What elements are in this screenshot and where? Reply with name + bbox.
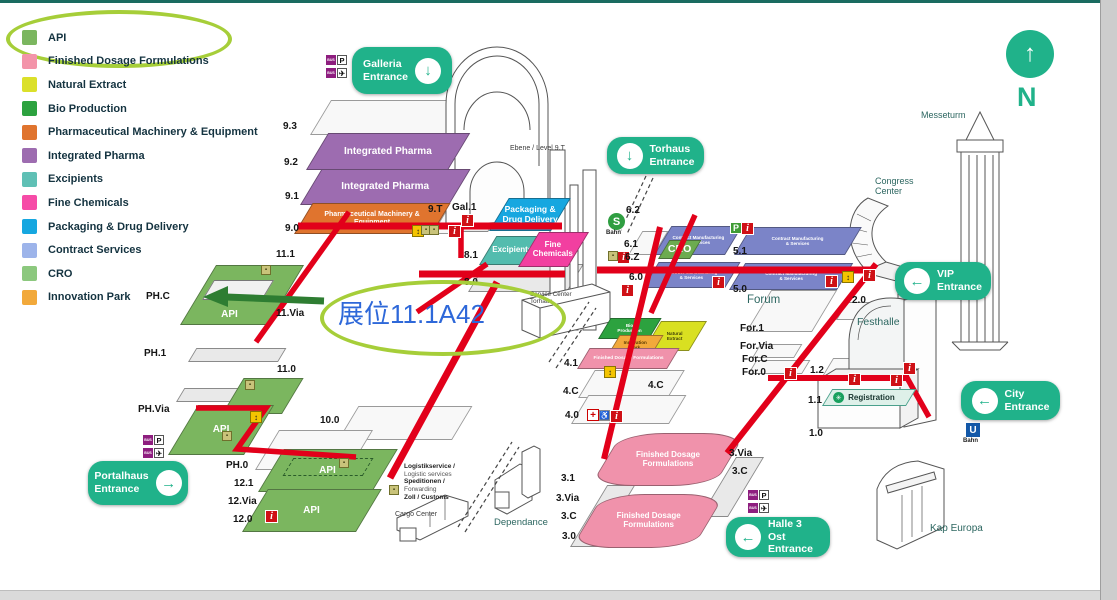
hall-level-label: 1.1	[808, 395, 822, 406]
legend-swatch	[22, 195, 37, 210]
facility-icon: ▪	[245, 380, 255, 390]
registration-label: Registration	[848, 393, 895, 402]
messeturm-building	[952, 112, 1008, 350]
entrance-label: Portalhaus Entrance	[94, 470, 148, 495]
logistics-text-block: Logistikservice /Logistic servicesSpedit…	[404, 463, 455, 501]
hall-slab: Integrated Pharma	[300, 169, 471, 205]
hall-slab: Packaging & Drug Delivery	[489, 198, 571, 231]
bus-airplane-icon: BUS✈	[748, 503, 769, 513]
entrance-galleria-button[interactable]: Galleria Entrance↓	[352, 47, 452, 94]
hall-level-label: 5.0	[733, 284, 747, 295]
bus-icon: BUS	[143, 435, 153, 445]
facility-icon: ▪	[222, 431, 232, 441]
info-icon: i	[621, 284, 634, 297]
hall-level-label: 6.2	[626, 205, 640, 216]
airplane-icon: ✈	[154, 448, 164, 458]
entrance-arrow-icon: ←	[735, 524, 761, 550]
hall-slab-label: Finished Dosage Formulations	[592, 512, 705, 530]
bus-parking-icon: BUSP	[748, 490, 769, 500]
hall-slab: Contract Manufacturing & Services	[643, 262, 741, 288]
info-icon: i	[903, 362, 916, 375]
hall-slab-label: Contract Manufacturing & Services	[747, 236, 849, 246]
bus-parking-icon: BUSP	[326, 55, 347, 65]
legend-item-label: Excipients	[48, 173, 103, 185]
hall-level-label: 9.1	[285, 191, 299, 202]
info-icon: i	[461, 214, 474, 227]
bus-icon: BUS	[748, 503, 758, 513]
place-label: Forum	[747, 294, 780, 307]
legend-item-label: Bio Production	[48, 103, 127, 115]
booth-annotation-label: 展位11.1A42	[338, 294, 485, 331]
legend-item: API	[22, 26, 258, 50]
legend-swatch	[22, 266, 37, 281]
bottom-edge-strip	[0, 590, 1100, 600]
bus-icon: BUS	[326, 55, 336, 65]
info-icon: i	[848, 373, 861, 386]
hall-dashed-area	[283, 458, 374, 476]
hall-level-label: For.C	[742, 354, 768, 365]
info-icon: i	[863, 269, 876, 282]
entrance-city-button[interactable]: ←City Entrance	[961, 381, 1060, 420]
entrance-label: Torhaus Entrance	[650, 143, 695, 168]
exhibition-map: APIFinished Dosage FormulationsNatural E…	[0, 0, 1117, 600]
legend-item-label: API	[48, 32, 66, 44]
info-icon: i	[448, 225, 461, 238]
legend-item-label: Finished Dosage Formulations	[48, 55, 209, 67]
facility-icon: ▪	[608, 251, 618, 261]
hall-level-label: PH.Via	[138, 404, 170, 415]
hall-level-plate	[578, 370, 685, 398]
parking-icon: P	[154, 435, 164, 445]
hall-level-label: For.0	[742, 367, 766, 378]
legend-swatch	[22, 101, 37, 116]
legend-item: Integrated Pharma	[22, 144, 258, 168]
legend-item-label: Fine Chemicals	[48, 197, 129, 209]
legend-item: Excipients	[22, 168, 258, 192]
hall-level-label: Gal.1	[452, 202, 476, 213]
hall-slab-label: Finished Dosage Formulations	[611, 451, 726, 469]
hall-level-label: 12.0	[233, 514, 252, 525]
hall-level-label: 3.C	[732, 466, 748, 477]
hall-level-label: 9.2	[284, 157, 298, 168]
hall-level-plate	[188, 348, 286, 362]
bus-airplane-icon: BUS✈	[143, 448, 164, 458]
place-label: Ebene / Level 9.T	[510, 145, 565, 153]
legend-item-label: Contract Services	[48, 244, 142, 256]
info-icon: i	[825, 275, 838, 288]
hall-slab: API	[258, 449, 398, 492]
logistics-line: Zoll / Customs	[404, 494, 455, 502]
hall-level-label: 11.1	[276, 249, 295, 260]
legend-swatch	[22, 148, 37, 163]
legend-item: Packaging & Drug Delivery	[22, 215, 258, 239]
legend-item: Finished Dosage Formulations	[22, 50, 258, 74]
legend-item-label: Innovation Park	[48, 291, 131, 303]
hall-slab-label: CRO	[666, 244, 694, 256]
hall-level-label: For.Via	[740, 341, 773, 352]
hall-level-label: 3.1	[561, 473, 575, 484]
hall-level-label: 2.0	[852, 295, 866, 306]
hall-slab-label: API	[186, 424, 256, 435]
hall-level-label: 1.2	[810, 365, 824, 376]
entrance-label: Galleria Entrance	[363, 58, 408, 83]
hall-level-label: 8.1	[464, 250, 478, 261]
bus-icon: BUS	[326, 68, 336, 78]
u-bahn-badge: U	[966, 423, 980, 437]
legend-item-label: Pharmaceutical Machinery & Equipment	[48, 126, 258, 138]
facility-icon: ▪	[389, 485, 399, 495]
bus-icon: BUS	[143, 448, 153, 458]
bus-airplane-icon: BUS✈	[326, 68, 347, 78]
info-icon: i	[741, 222, 754, 235]
bus-icon: BUS	[748, 490, 758, 500]
hall-level-label: 4.1	[564, 358, 578, 369]
legend-item-label: Integrated Pharma	[48, 150, 145, 162]
hall-slab-label: Pharmaceutical Machinery & Equipment	[308, 211, 436, 227]
parking-icon: P	[730, 222, 742, 234]
hall-slab-label: Fine Chemicals	[531, 241, 576, 259]
legend-item: CRO	[22, 262, 258, 286]
entrance-arrow-icon: ↓	[617, 143, 643, 169]
facility-icon: ▪	[429, 225, 439, 235]
right-edge-strip	[1100, 0, 1117, 600]
top-accent-bar	[0, 0, 1117, 3]
place-label: Cargo Center	[395, 511, 437, 519]
hall-slab-label: Integrated Pharma	[316, 181, 454, 192]
hall-slab: Finished Dosage Formulations	[571, 494, 725, 548]
place-label: Congress Center	[875, 176, 914, 196]
hall-level-label: 6.Z	[625, 252, 639, 263]
entrance-arrow-icon: ←	[904, 268, 930, 294]
legend-swatch	[22, 125, 37, 140]
hall-slab-label: Finished Dosage Formulations	[587, 356, 670, 361]
place-label: Kap Europa	[930, 523, 983, 534]
hall-level-label: 6.0	[629, 272, 643, 283]
legend-item: Natural Extract	[22, 73, 258, 97]
hall-level-label: 3.Via	[729, 448, 752, 459]
legend-item-label: CRO	[48, 268, 72, 280]
kap-europa-building	[877, 461, 944, 549]
legend-item-label: Natural Extract	[48, 79, 126, 91]
bus-parking-icon: BUSP	[143, 435, 164, 445]
entrance-arrow-icon: ↓	[415, 58, 441, 84]
place-label: Dependance	[494, 518, 548, 529]
first-aid-icon: +	[587, 409, 599, 421]
airplane-icon: ✈	[337, 68, 347, 78]
entrance-label: Halle 3 Ost Entrance	[768, 518, 821, 556]
entrance-label: City Entrance	[1005, 388, 1050, 413]
s-bahn-label: Bahn	[606, 230, 621, 236]
hall-level-label: 3.Via	[556, 493, 579, 504]
entrance-portalhaus-button[interactable]: Portalhaus Entrance→	[88, 461, 188, 505]
legend-swatch	[22, 77, 37, 92]
hall-level-label: 9.T	[428, 204, 442, 215]
hall-level-label: 12.Via	[228, 496, 257, 507]
parking-icon: P	[337, 55, 347, 65]
place-label: Messeturm	[921, 110, 966, 120]
facility-icon: ▪	[261, 265, 271, 275]
hall-level-label: 4.0	[565, 410, 579, 421]
legend-swatch	[22, 172, 37, 187]
hall-level-label: 1.0	[809, 428, 823, 439]
hall-level-label: 9.0	[285, 223, 299, 234]
logistics-line: Speditionen /	[404, 478, 455, 486]
airplane-icon: ✈	[759, 503, 769, 513]
hall-level-label: 5.1	[733, 246, 747, 257]
legend-swatch	[22, 54, 37, 69]
legend-item: Contract Services	[22, 238, 258, 262]
logistics-line: Forwarding	[404, 486, 455, 494]
u-bahn-label: Bahn	[963, 438, 978, 444]
hall-level-label: 9.3	[283, 121, 297, 132]
hall-level-label: PH.0	[226, 460, 248, 471]
entrance-label: VIP Entrance	[937, 268, 982, 293]
north-arrow-icon: ↑	[1006, 30, 1054, 78]
info-icon: i	[265, 510, 278, 523]
place-label: Festhalle	[857, 317, 900, 329]
logistics-line: Logistikservice /	[404, 463, 455, 471]
hall-slab-label: API	[189, 309, 270, 324]
entrance-vip-button[interactable]: ←VIP Entrance	[895, 262, 991, 300]
legend-swatch	[22, 30, 37, 45]
hall-level-label: 11.Via	[276, 308, 304, 319]
escalator-icon: ↕	[842, 271, 854, 283]
hall-slab: Integrated Pharma	[306, 133, 470, 170]
hall-level-label: 12.1	[234, 478, 253, 489]
s-bahn-badge: S	[607, 212, 626, 231]
hall-level-label: 4.C	[648, 380, 664, 391]
accessible-icon: ♿	[599, 410, 610, 421]
facility-icon: ▪	[339, 458, 349, 468]
dependance-building	[495, 446, 540, 514]
entrance-halle-3-ost-button[interactable]: ←Halle 3 Ost Entrance	[726, 517, 830, 557]
category-legend: APIFinished Dosage FormulationsNatural E…	[22, 26, 258, 309]
logistics-line: Logistic services	[404, 471, 455, 479]
parking-icon: P	[759, 490, 769, 500]
info-icon: i	[712, 276, 725, 289]
hall-slab: Finished Dosage Formulations	[577, 348, 680, 369]
hall-level-label: 6.1	[624, 239, 638, 250]
legend-swatch	[22, 243, 37, 258]
entrance-arrow-icon: →	[156, 470, 182, 496]
hall-slab: API	[242, 489, 382, 532]
info-icon: i	[890, 374, 903, 387]
legend-swatch	[22, 290, 37, 305]
info-icon: i	[610, 410, 623, 423]
hall-level-label: PH.1	[144, 348, 166, 359]
hall-level-label: 10.0	[320, 415, 339, 426]
escalator-icon: ↕	[250, 411, 262, 423]
legend-swatch	[22, 219, 37, 234]
hall-level-label: 4.C	[563, 386, 579, 397]
hall-slab-label: Packaging & Drug Delivery	[502, 205, 558, 224]
entrance-torhaus-button[interactable]: ↓Torhaus Entrance	[607, 137, 704, 174]
legend-item: Pharmaceutical Machinery & Equipment	[22, 120, 258, 144]
north-label: N	[1017, 82, 1037, 113]
legend-item-label: Packaging & Drug Delivery	[48, 221, 189, 233]
hall-slab-label: Bio Production	[607, 323, 653, 333]
registration-badge: ✳ Registration	[822, 389, 916, 406]
legend-item: Fine Chemicals	[22, 191, 258, 215]
registration-icon: ✳	[833, 392, 844, 403]
hall-level-plate	[310, 100, 481, 135]
legend-item: Bio Production	[22, 97, 258, 121]
hall-level-label: 11.0	[277, 364, 296, 375]
hall-level-label: For.1	[740, 323, 764, 334]
legend-item: Innovation Park	[22, 286, 258, 310]
entrance-arrow-icon: ←	[972, 388, 998, 414]
info-icon: i	[784, 367, 797, 380]
escalator-icon: ↕	[604, 366, 616, 378]
hall-level-label: 3.0	[562, 531, 576, 542]
hall-slab-label: Integrated Pharma	[322, 146, 454, 157]
hall-level-label: 3.C	[561, 511, 577, 522]
